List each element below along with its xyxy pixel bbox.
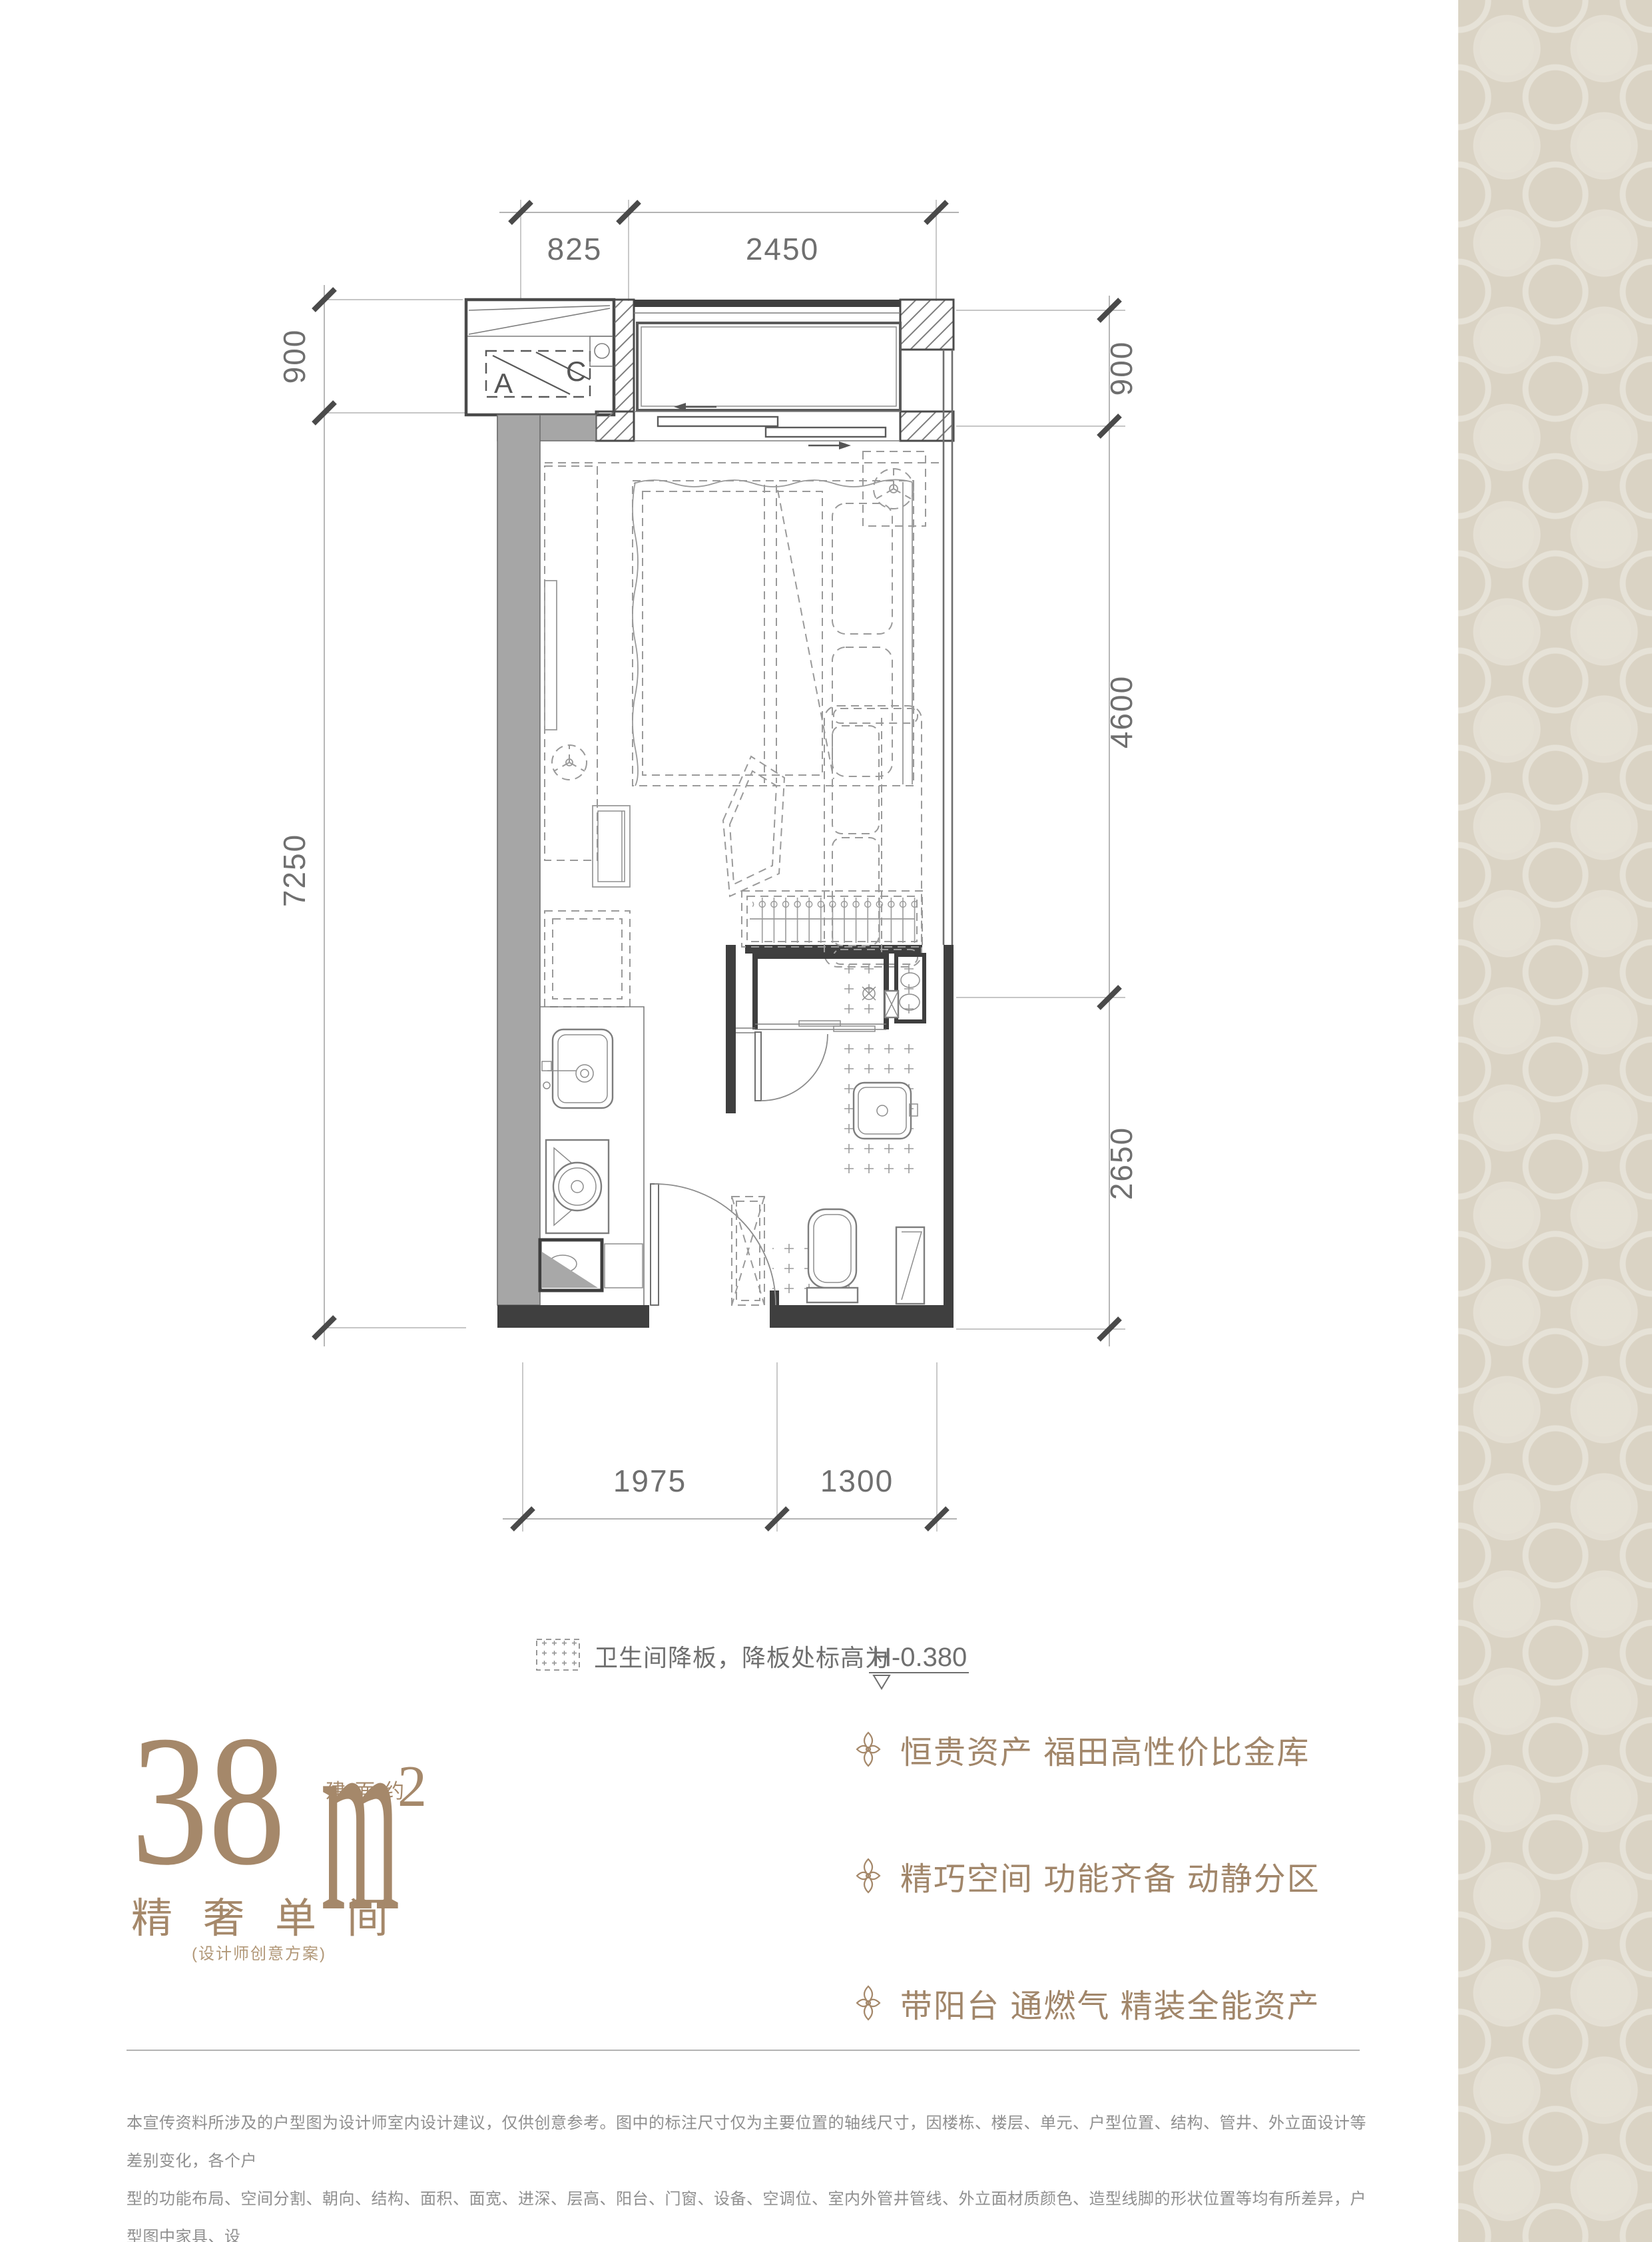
ac-label-a: A	[494, 368, 513, 399]
area-number: 38	[131, 1697, 286, 1904]
area-unit-sup: 2	[398, 1755, 427, 1819]
knot-ornament-icon	[854, 1731, 883, 1768]
balcony-outer-wall	[634, 300, 900, 307]
entry-door	[651, 1184, 776, 1305]
dim-left-900: 900	[277, 329, 312, 384]
wall-pier	[900, 412, 954, 441]
bedroom-furniture	[545, 451, 940, 1007]
knot-ornament-icon	[854, 1857, 883, 1894]
feature-row: 恒贵资产 福田高性价比金库	[854, 1729, 1310, 1770]
toilet	[807, 1209, 858, 1302]
wall-pier	[596, 412, 634, 441]
balcony-window	[637, 323, 900, 410]
dim-left-7250: 7250	[277, 834, 312, 907]
disclaimer-line: 型的功能布局、空间分割、朝向、结构、面积、面宽、进深、层高、阳台、门窗、设备、空…	[127, 2180, 1378, 2242]
bathroom	[732, 955, 924, 1305]
dim-bottom-1300: 1300	[820, 1464, 894, 1498]
legend-swatch	[537, 1639, 579, 1670]
ceiling-fan-icon	[552, 745, 587, 780]
divider-line	[127, 2050, 1360, 2051]
shear-wall	[497, 415, 540, 1305]
unit-subtitle: (设计师创意方案)	[192, 1945, 326, 1963]
wall-pier	[900, 300, 954, 350]
dim-right-2650: 2650	[1104, 1127, 1139, 1200]
wardrobe	[742, 891, 922, 947]
floor-plan-drawing: 825 2450 900 7250 900 4600 2650	[0, 0, 1652, 2242]
dim-top-825: 825	[547, 232, 603, 266]
dim-top-2450: 2450	[746, 232, 819, 266]
dim-right-900: 900	[1104, 341, 1139, 396]
headline-block: 38 建面约 m 2 精奢单间 (设计师创意方案)	[131, 1671, 427, 1966]
washbasin	[854, 1083, 918, 1139]
pillow	[832, 647, 892, 776]
wall-pier	[614, 300, 634, 412]
feature-text: 恒贵资产 福田高性价比金库	[900, 1726, 1310, 1773]
sliding-door-leaf	[658, 417, 778, 426]
pipe-shaft	[732, 1197, 764, 1305]
feature-row: 精巧空间 功能齐备 动静分区	[854, 1855, 1320, 1896]
walls: A C	[466, 300, 954, 1328]
floorplan-page: 825 2450 900 7250 900 4600 2650	[0, 0, 1652, 2242]
legend-value: H-0.380	[872, 1643, 967, 1672]
gas-stove	[546, 1140, 609, 1233]
kitchen	[540, 1007, 776, 1305]
bath-cabinet	[896, 1227, 924, 1304]
disclaimer: 本宣传资料所涉及的户型图为设计师室内设计建议，仅供创意参考。图中的标注尺寸仅为主…	[127, 2104, 1378, 2242]
feature-row: 带阳台 通燃气 精装全能资产	[854, 1982, 1320, 2024]
bathroom-door	[736, 1028, 828, 1101]
disclaimer-line: 本宣传资料所涉及的户型图为设计师室内设计建议，仅供创意参考。图中的标注尺寸仅为主…	[127, 2104, 1378, 2180]
legend-text: 卫生间降板，降板处标高为	[594, 1644, 890, 1671]
plan-legend: 卫生间降板，降板处标高为 H-0.380	[537, 1639, 969, 1689]
mop-sink	[540, 1240, 643, 1290]
sliding-door-leaf	[766, 427, 886, 437]
kitchen-sink	[542, 1029, 613, 1108]
knot-ornament-icon	[854, 1984, 883, 2022]
desk	[593, 806, 630, 887]
dim-bottom-1975: 1975	[613, 1464, 687, 1498]
dim-right-4600: 4600	[1104, 675, 1139, 748]
unit-title: 精奢单间	[131, 1896, 419, 1942]
feature-text: 精巧空间 功能齐备 动静分区	[900, 1852, 1320, 1899]
feature-text: 带阳台 通燃气 精装全能资产	[900, 1980, 1320, 2026]
coffee-table	[723, 756, 784, 896]
tv	[545, 581, 557, 730]
tv-cabinet	[545, 466, 597, 860]
fridge	[545, 911, 630, 1007]
ac-label-c: C	[566, 356, 586, 387]
